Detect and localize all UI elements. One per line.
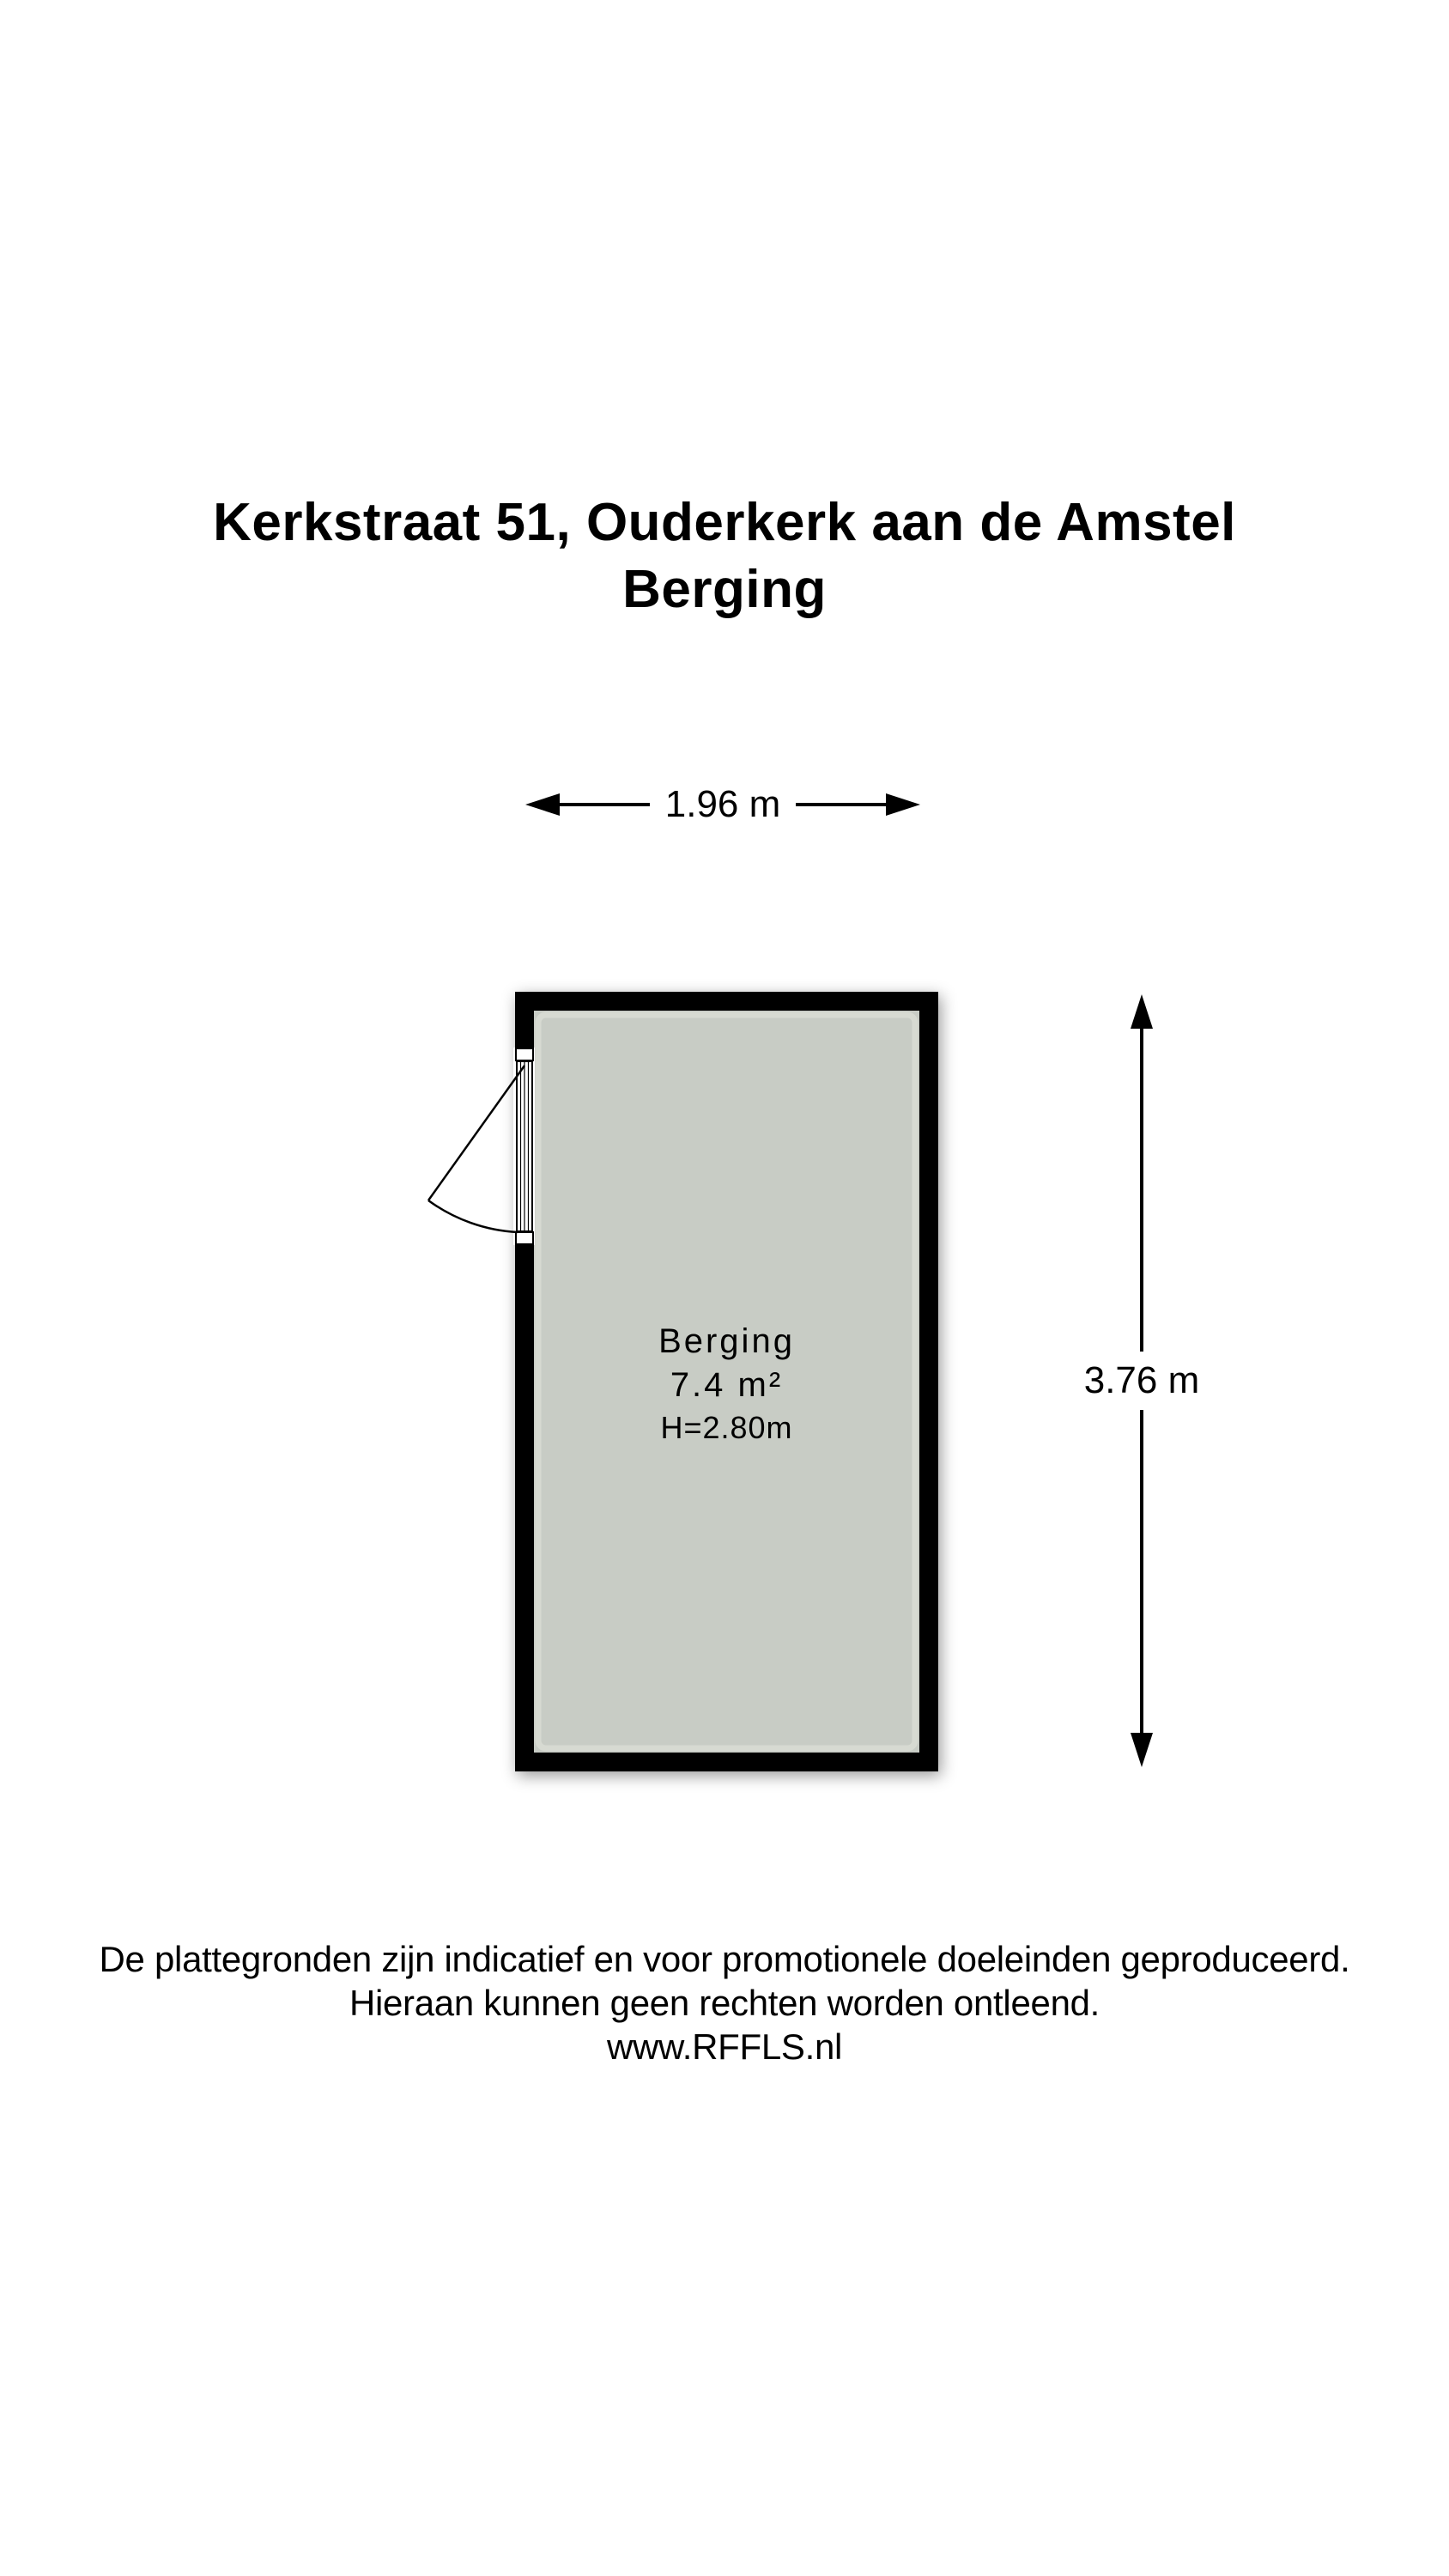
room-ceiling-height: H=2.80m: [534, 1408, 919, 1448]
door-jamb-bottom: [516, 1232, 533, 1244]
arrow-up-icon: [1131, 994, 1153, 1029]
height-dimension-label: 3.76 m: [1084, 1352, 1200, 1410]
height-dimension-line-top: [1140, 1029, 1143, 1352]
door-leaf-line: [428, 1066, 524, 1200]
floorplan-page: Kerkstraat 51, Ouderkerk aan de Amstel B…: [0, 0, 1449, 2576]
arrow-down-icon: [1131, 1733, 1153, 1767]
width-dimension-line-right: [796, 803, 886, 806]
page-title: Kerkstraat 51, Ouderkerk aan de Amstel B…: [0, 489, 1449, 623]
width-dimension: 1.96 m: [525, 783, 920, 826]
width-dimension-line-left: [560, 803, 650, 806]
arrow-right-icon: [886, 793, 920, 816]
height-dimension-line-bottom: [1140, 1410, 1143, 1733]
website-text: www.RFFLS.nl: [0, 2025, 1449, 2069]
door-swing-arc: [428, 1200, 518, 1232]
title-address: Kerkstraat 51, Ouderkerk aan de Amstel: [0, 489, 1449, 556]
arrow-left-icon: [525, 793, 560, 816]
title-floor-label: Berging: [0, 556, 1449, 623]
height-dimension: 3.76 m: [1077, 994, 1206, 1767]
door: [428, 1048, 535, 1245]
room-name: Berging: [534, 1321, 919, 1362]
disclaimer-line-1: De plattegronden zijn indicatief en voor…: [0, 1937, 1449, 1981]
door-jamb-top: [516, 1048, 533, 1060]
disclaimer-line-2: Hieraan kunnen geen rechten worden ontle…: [0, 1981, 1449, 2025]
room-label: Berging 7.4 m² H=2.80m: [534, 1321, 919, 1448]
width-dimension-label: 1.96 m: [650, 784, 797, 825]
footer: De plattegronden zijn indicatief en voor…: [0, 1937, 1449, 2069]
room-area: 7.4 m²: [534, 1364, 919, 1406]
